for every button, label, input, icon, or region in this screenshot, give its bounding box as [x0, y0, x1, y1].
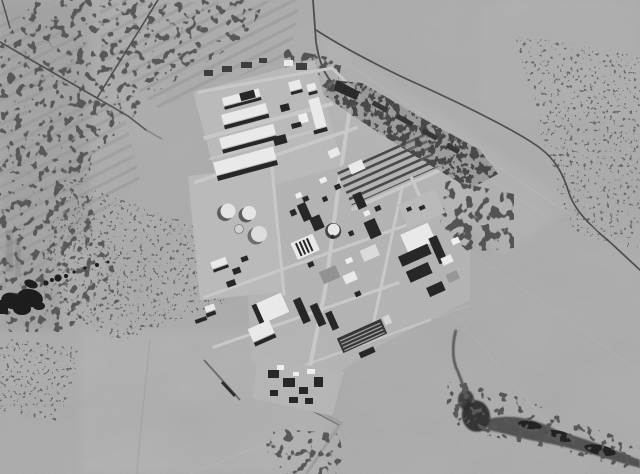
satellite-photo-canvas: [0, 0, 640, 474]
satellite-photo: Black-and-white aerial satellite photogr…: [0, 0, 640, 474]
film-grain: [0, 0, 640, 474]
